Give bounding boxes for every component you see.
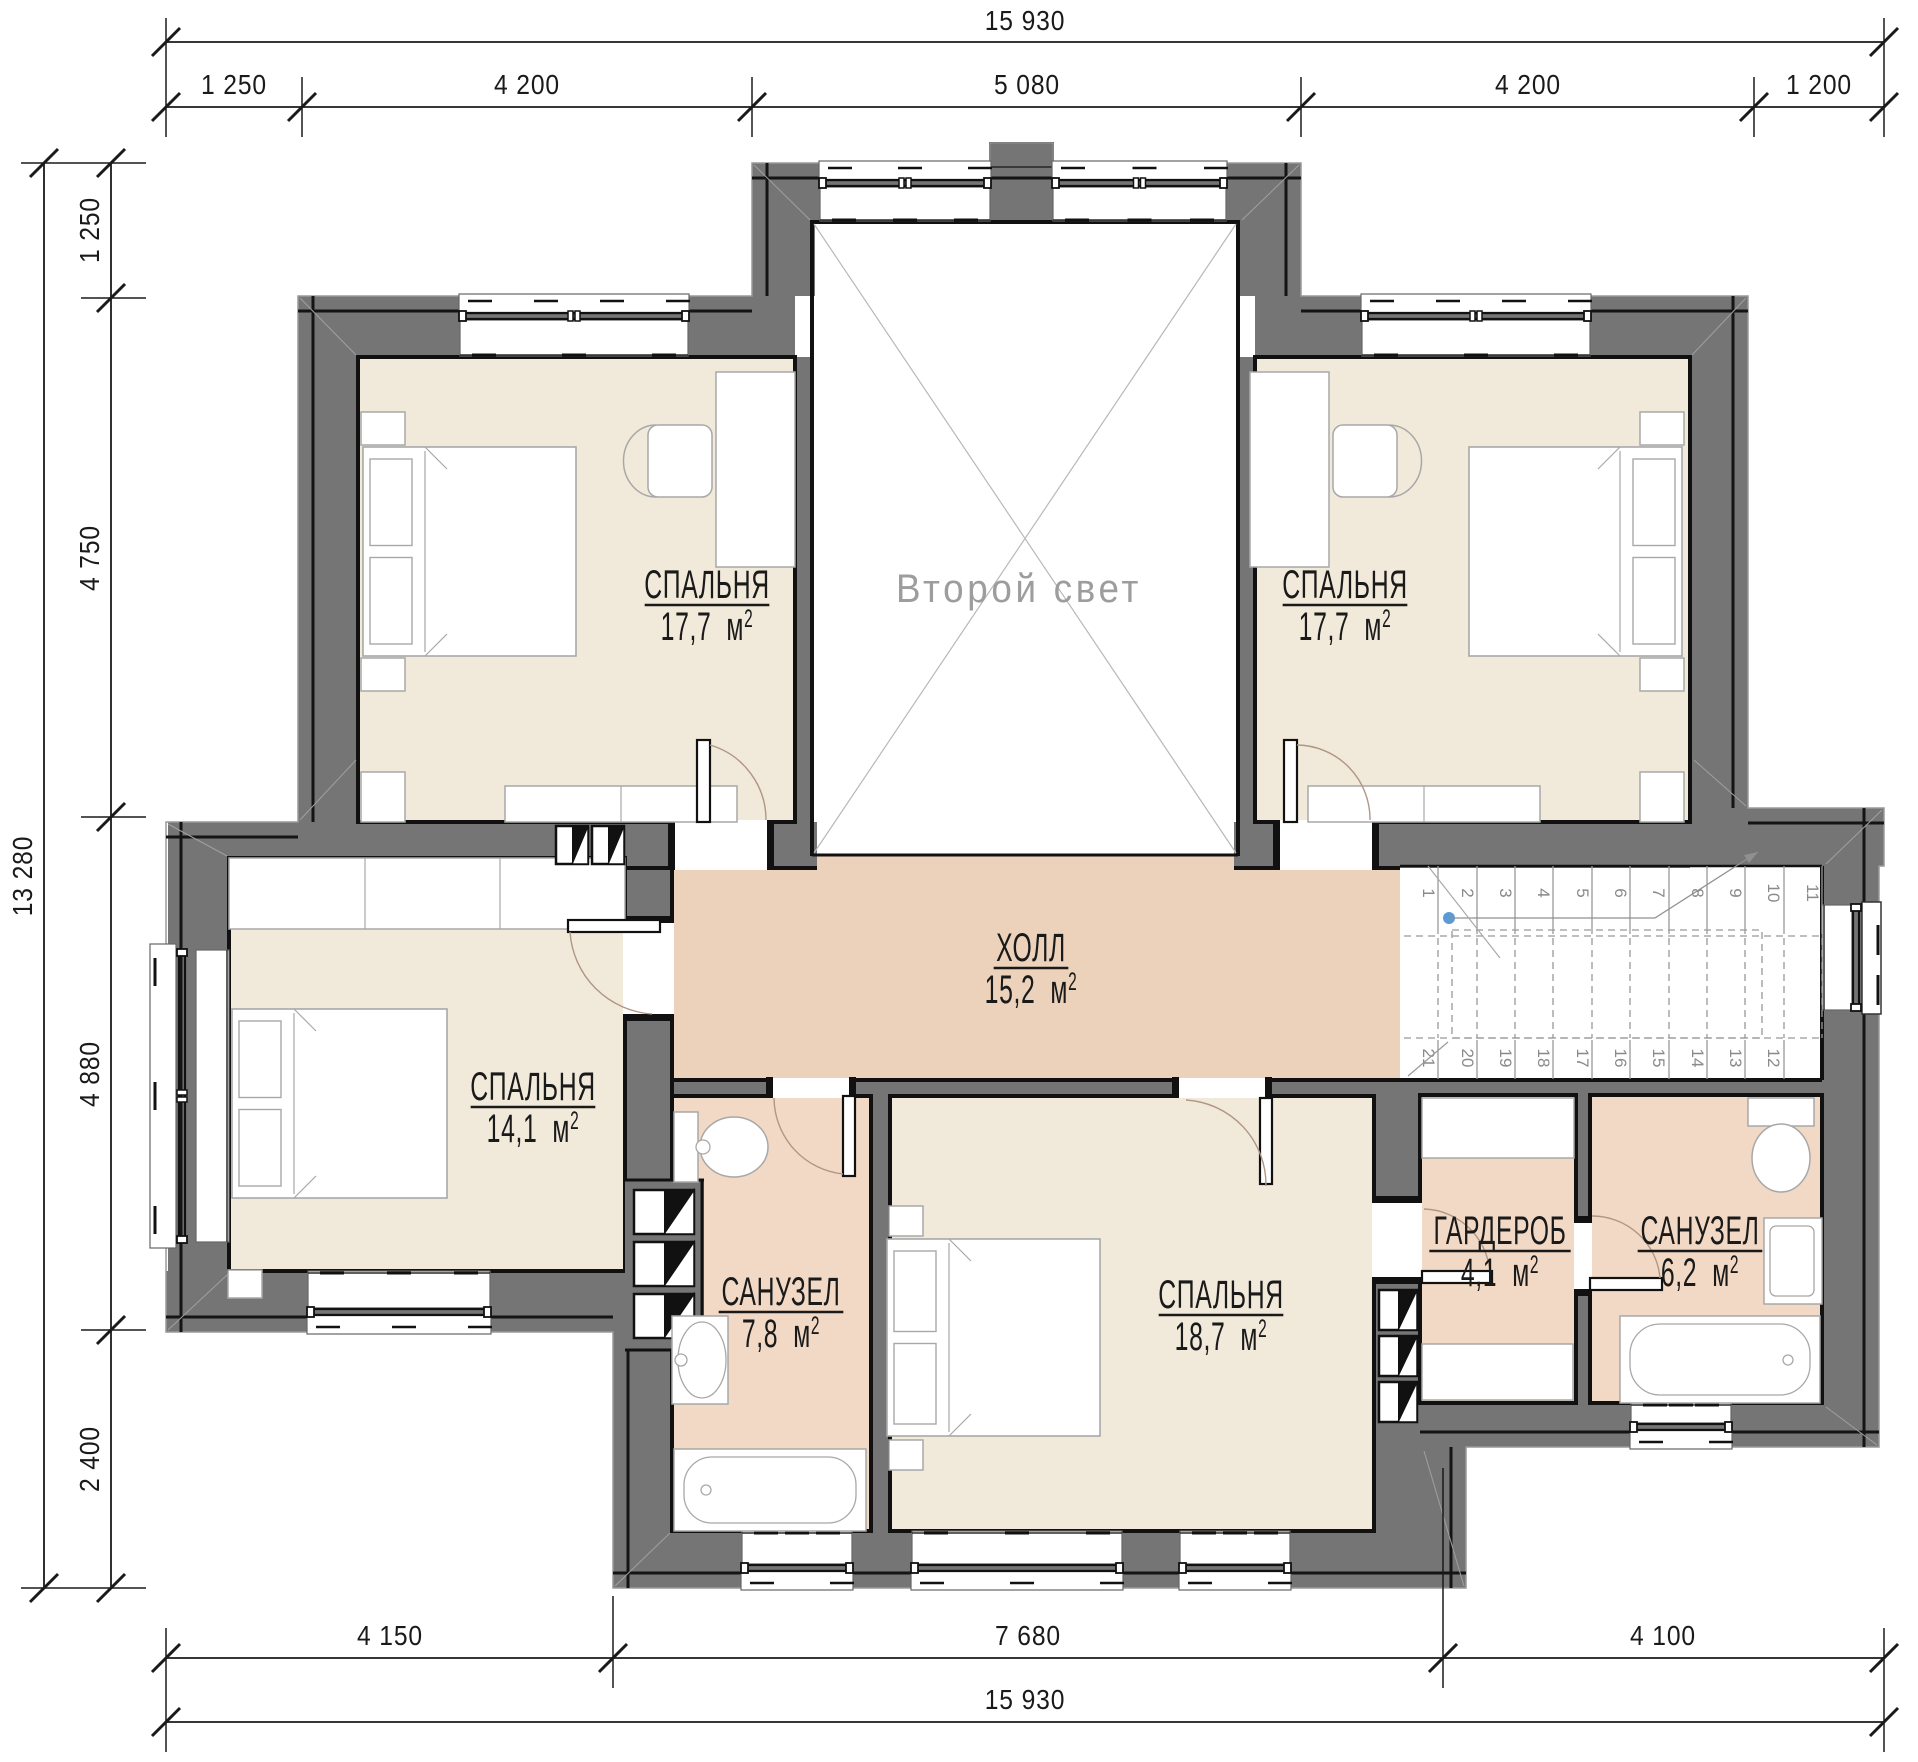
svg-text:2: 2 — [1458, 888, 1477, 897]
svg-text:4: 4 — [1534, 888, 1553, 897]
svg-text:17: 17 — [1573, 1049, 1592, 1068]
svg-text:7 680: 7 680 — [995, 1620, 1061, 1652]
svg-text:СПАЛЬНЯ: СПАЛЬНЯ — [1282, 563, 1407, 607]
svg-text:СПАЛЬНЯ: СПАЛЬНЯ — [1158, 1273, 1283, 1317]
svg-text:7,8 м2: 7,8 м2 — [742, 1312, 820, 1356]
svg-text:1 200: 1 200 — [1786, 69, 1852, 101]
svg-text:7: 7 — [1649, 888, 1668, 897]
svg-text:14,1 м2: 14,1 м2 — [487, 1107, 580, 1151]
svg-text:Второй свет: Второй свет — [896, 567, 1142, 612]
svg-text:4 150: 4 150 — [357, 1620, 423, 1652]
svg-text:ГАРДЕРОБ: ГАРДЕРОБ — [1433, 1209, 1566, 1253]
svg-text:САНУЗЕЛ: САНУЗЕЛ — [1640, 1209, 1759, 1253]
svg-text:6,2 м2: 6,2 м2 — [1661, 1251, 1739, 1295]
svg-text:12: 12 — [1764, 1049, 1783, 1068]
svg-text:15 930: 15 930 — [985, 1684, 1066, 1716]
svg-text:СПАЛЬНЯ: СПАЛЬНЯ — [470, 1065, 595, 1109]
svg-text:4 200: 4 200 — [1495, 69, 1561, 101]
svg-text:15 930: 15 930 — [985, 5, 1066, 37]
svg-text:20: 20 — [1458, 1049, 1477, 1068]
svg-text:17,7 м2: 17,7 м2 — [1299, 605, 1392, 649]
svg-text:6: 6 — [1611, 888, 1630, 897]
svg-text:ХОЛЛ: ХОЛЛ — [996, 926, 1066, 970]
svg-text:4 200: 4 200 — [494, 69, 560, 101]
svg-text:17,7 м2: 17,7 м2 — [661, 605, 754, 649]
svg-text:19: 19 — [1496, 1049, 1515, 1068]
svg-text:15: 15 — [1649, 1049, 1668, 1068]
svg-text:5: 5 — [1573, 888, 1592, 897]
svg-text:1 250: 1 250 — [201, 69, 267, 101]
svg-text:1: 1 — [1419, 888, 1438, 897]
svg-text:13: 13 — [1726, 1049, 1745, 1068]
svg-text:9: 9 — [1726, 888, 1745, 897]
svg-text:5 080: 5 080 — [994, 69, 1060, 101]
svg-text:4 750: 4 750 — [74, 525, 106, 591]
svg-text:4,1 м2: 4,1 м2 — [1461, 1251, 1539, 1295]
svg-text:18,7 м2: 18,7 м2 — [1175, 1315, 1268, 1359]
svg-text:САНУЗЕЛ: САНУЗЕЛ — [721, 1270, 840, 1314]
svg-text:15,2 м2: 15,2 м2 — [985, 968, 1078, 1012]
svg-text:СПАЛЬНЯ: СПАЛЬНЯ — [644, 563, 769, 607]
svg-text:1 250: 1 250 — [74, 197, 106, 263]
svg-text:4 880: 4 880 — [74, 1041, 106, 1107]
svg-text:8: 8 — [1688, 888, 1707, 897]
svg-text:4 100: 4 100 — [1630, 1620, 1696, 1652]
svg-text:14: 14 — [1688, 1049, 1707, 1068]
svg-text:10: 10 — [1764, 884, 1783, 903]
svg-text:11: 11 — [1803, 884, 1822, 902]
svg-text:2 400: 2 400 — [74, 1426, 106, 1492]
svg-text:13 280: 13 280 — [7, 836, 39, 917]
svg-text:18: 18 — [1534, 1049, 1553, 1068]
svg-text:3: 3 — [1496, 888, 1515, 897]
svg-text:16: 16 — [1611, 1049, 1630, 1068]
